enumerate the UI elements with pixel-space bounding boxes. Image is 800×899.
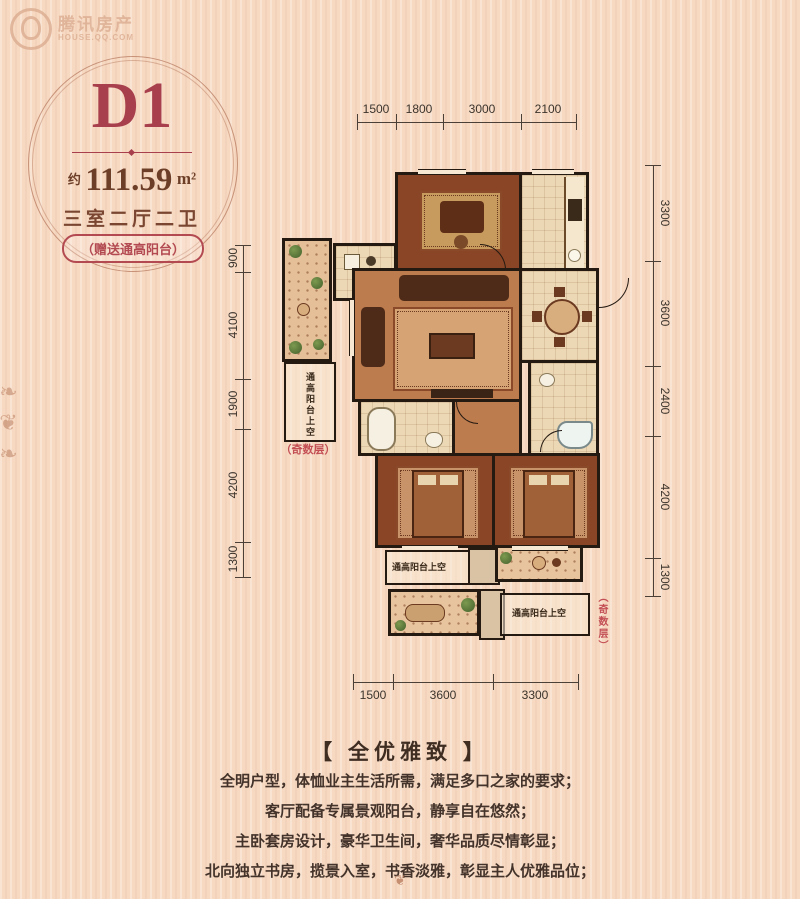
dim-tick [576, 114, 577, 130]
dim-tick [645, 436, 661, 437]
plant-icon [500, 552, 512, 564]
dim-tick [645, 261, 661, 262]
study-room [395, 172, 522, 271]
dim-label: 1900 [226, 382, 240, 426]
dim-label: 2100 [526, 102, 570, 116]
unit-layout: 三室二厅二卫 [30, 204, 234, 231]
area-unit: m² [177, 169, 196, 188]
watermark-brand: 腾讯房产 [58, 16, 134, 34]
coffee-table [429, 333, 475, 359]
equipment-dot [366, 256, 376, 266]
dim-label: 3600 [421, 688, 465, 702]
badge-divider [72, 152, 192, 153]
balcony-table [532, 556, 546, 570]
dim-tick [235, 429, 251, 430]
dim-label: 2400 [658, 379, 672, 423]
dim-line-top [357, 122, 576, 123]
desk [440, 201, 484, 233]
bathroom-second [528, 360, 599, 456]
dining-room [519, 268, 599, 363]
bathtub [367, 407, 396, 451]
floor-parity-note-left: （奇数层） [275, 441, 341, 457]
dim-label: 3000 [460, 102, 504, 116]
dim-tick [235, 379, 251, 380]
dim-label: 4200 [658, 475, 672, 519]
dining-chair [532, 311, 542, 322]
dim-tick [493, 674, 494, 690]
sofa-main [399, 275, 509, 301]
unit-code: D1 [30, 68, 234, 144]
void-balcony-label: 通高阳台上空 [304, 372, 317, 438]
toilet [425, 432, 443, 448]
watermark-url: HOUSE.QQ.COM [58, 34, 134, 42]
plant-icon [289, 245, 302, 258]
void-balcony-label: 通高阳台上空 [392, 560, 446, 573]
description-title: 【 全优雅致 】 [0, 736, 800, 766]
dim-label: 1800 [397, 102, 441, 116]
flourish-ornament-icon: ❧❦❧ [0, 380, 22, 473]
window [349, 300, 355, 356]
dim-label: 3600 [658, 291, 672, 335]
dim-line-left [243, 245, 244, 577]
site-watermark: 腾讯房产 HOUSE.QQ.COM [10, 8, 134, 50]
bathroom-main [358, 399, 455, 456]
plant-icon [395, 620, 406, 631]
dim-label: 1500 [351, 688, 395, 702]
bedroom-master [492, 453, 600, 548]
balcony-bottom-left [388, 589, 480, 636]
entry-door-arc [599, 278, 629, 308]
dim-label: 1300 [226, 537, 240, 581]
description-line: 全明户型，体恤业主生活所需，满足多口之家的要求； [0, 770, 800, 791]
living-room [352, 268, 522, 402]
tv-cabinet [431, 389, 493, 398]
plant-icon [313, 339, 324, 350]
dim-tick [443, 114, 444, 130]
dim-tick [521, 114, 522, 130]
window [418, 169, 466, 175]
dim-label: 3300 [658, 191, 672, 235]
dim-label: 4100 [226, 303, 240, 347]
area-prefix: 约 [68, 172, 81, 187]
dim-tick [578, 674, 579, 690]
dim-line-bottom [353, 682, 578, 683]
bed [523, 470, 575, 538]
window [402, 545, 458, 551]
lounge-seat [405, 604, 445, 622]
floor-parity-note-right: （奇数层） [594, 592, 609, 652]
area-value: 111.59 [85, 162, 172, 198]
dining-chair [554, 337, 565, 347]
void-balcony-left: 通高阳台上空 [284, 362, 336, 442]
desk-chair [454, 235, 468, 249]
bathtub-second [557, 421, 593, 449]
dim-tick [645, 366, 661, 367]
unit-area: 约 111.59 m² [30, 162, 234, 199]
flourish-divider-icon: ❦ [0, 872, 800, 889]
plant-icon [311, 277, 323, 289]
stove [568, 199, 582, 221]
kitchen-sink [568, 249, 581, 262]
dim-tick [645, 165, 661, 166]
dim-tick [396, 114, 397, 130]
bonus-balcony-pill: （赠送通高阳台） [62, 234, 204, 263]
plant-icon [289, 341, 302, 354]
dining-table [544, 299, 580, 335]
dining-chair [582, 311, 592, 322]
void-balcony-label: 通高阳台上空 [512, 606, 566, 619]
dim-label: 1500 [354, 102, 398, 116]
bedroom-left [375, 453, 495, 548]
penguin-logo-icon [10, 8, 52, 50]
balcony-left [282, 238, 332, 362]
sofa-side [361, 307, 385, 367]
balcony-table [297, 303, 310, 316]
dim-label: 900 [226, 236, 240, 280]
dining-chair [554, 287, 565, 297]
washbasin [539, 373, 555, 387]
balcony-chair [552, 558, 561, 567]
dim-label: 3300 [513, 688, 557, 702]
description-line: 客厅配备专属景观阳台，静享自在悠然； [0, 800, 800, 821]
plant-icon [461, 598, 475, 612]
dim-label: 1300 [658, 555, 672, 599]
description-line: 主卧套房设计，豪华卫生间，奢华品质尽情彰显； [0, 830, 800, 851]
dim-label: 4200 [226, 463, 240, 507]
dim-line-right [653, 165, 654, 597]
window [512, 545, 568, 551]
dim-tick [357, 114, 358, 130]
bed [412, 470, 464, 538]
window [532, 169, 574, 175]
